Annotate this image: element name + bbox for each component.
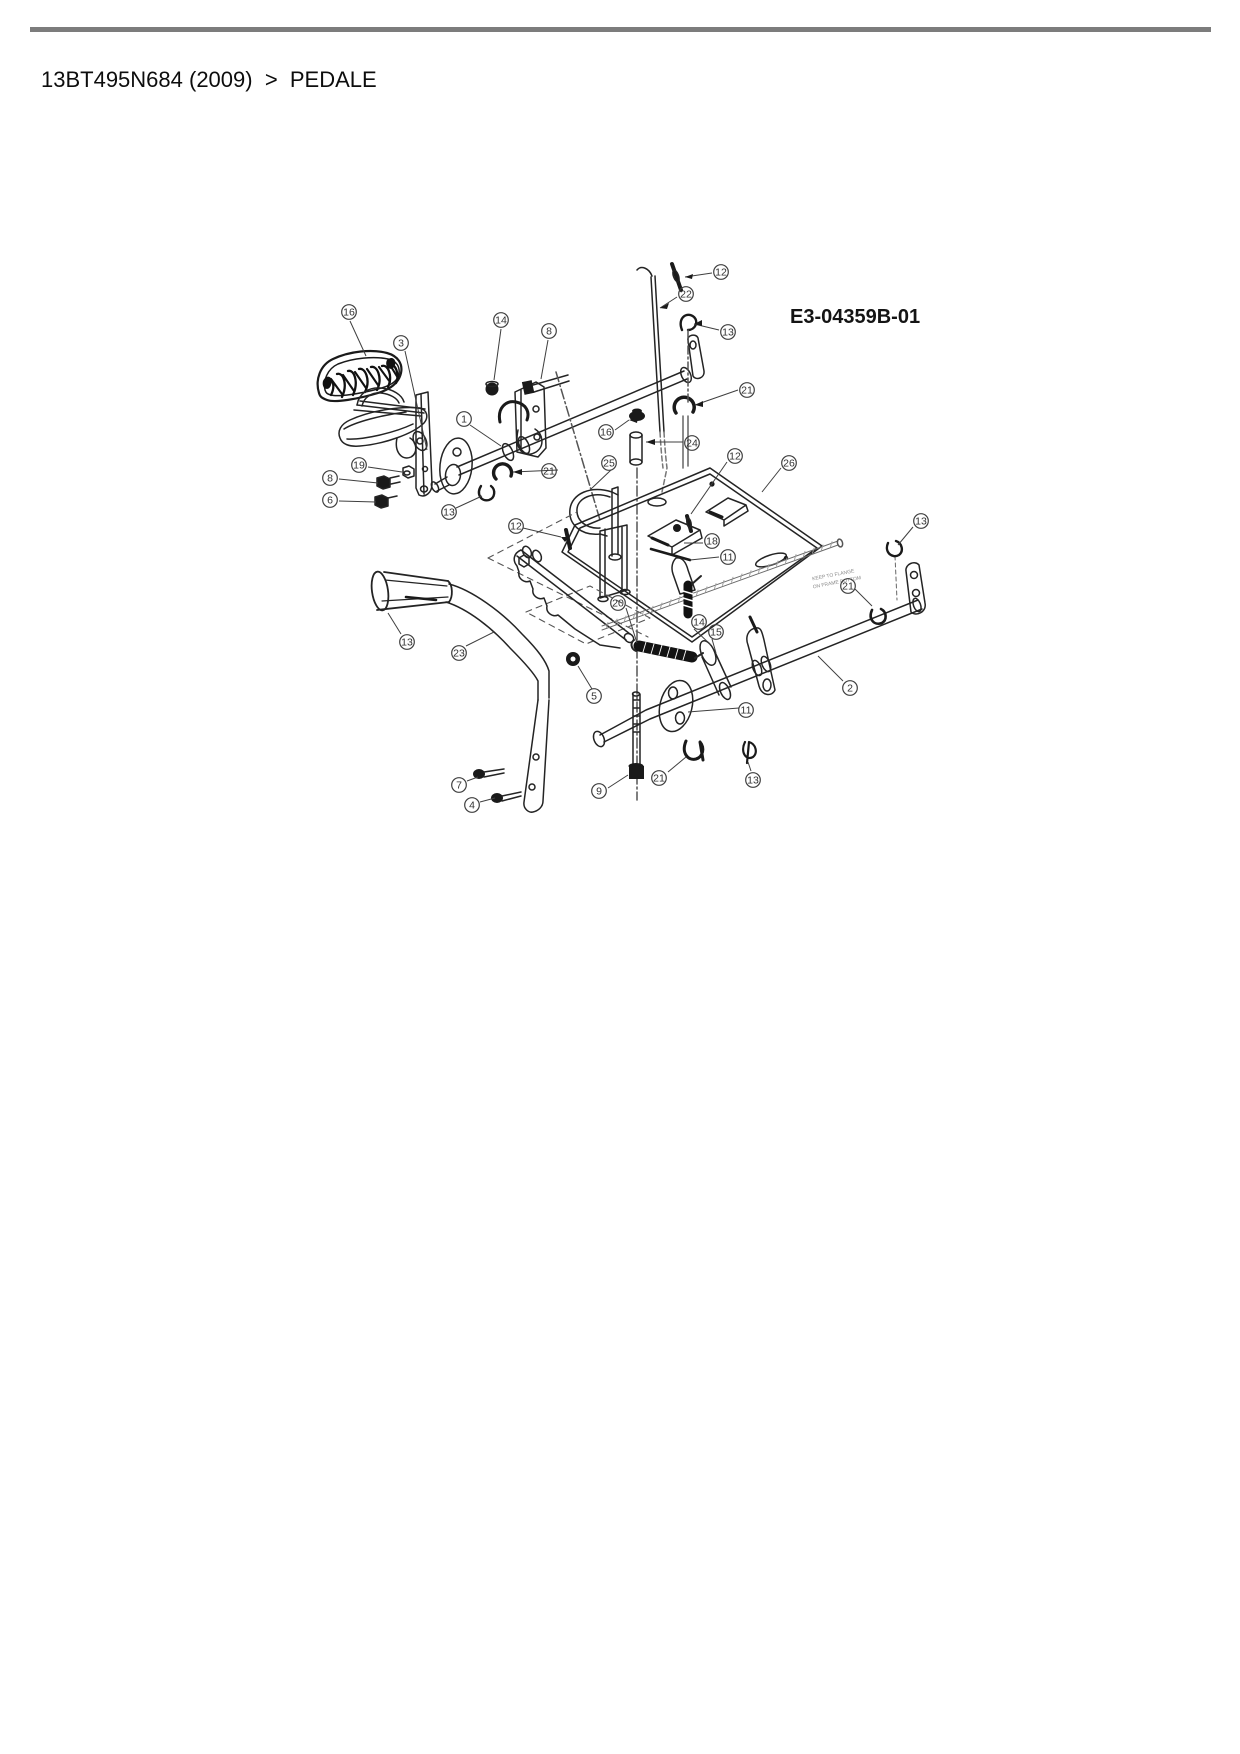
svg-text:12: 12 bbox=[729, 451, 741, 463]
svg-text:8: 8 bbox=[327, 473, 333, 485]
svg-text:1: 1 bbox=[461, 414, 467, 426]
svg-text:5: 5 bbox=[591, 691, 597, 703]
svg-text:16: 16 bbox=[600, 427, 612, 439]
svg-text:22: 22 bbox=[680, 289, 692, 301]
svg-text:24: 24 bbox=[686, 438, 698, 450]
svg-text:26: 26 bbox=[783, 458, 795, 470]
svg-text:21: 21 bbox=[842, 581, 854, 593]
svg-text:2: 2 bbox=[847, 683, 853, 695]
svg-text:20: 20 bbox=[612, 598, 624, 610]
svg-text:11: 11 bbox=[741, 705, 752, 717]
svg-text:13: 13 bbox=[915, 516, 927, 528]
svg-text:13: 13 bbox=[747, 775, 759, 787]
svg-text:14: 14 bbox=[495, 315, 507, 327]
svg-text:13: 13 bbox=[401, 637, 413, 649]
svg-text:23: 23 bbox=[453, 648, 465, 660]
svg-text:4: 4 bbox=[469, 800, 475, 812]
svg-text:16: 16 bbox=[343, 307, 355, 319]
svg-text:15: 15 bbox=[710, 627, 722, 639]
svg-text:8: 8 bbox=[546, 326, 552, 338]
svg-text:14: 14 bbox=[693, 617, 705, 629]
svg-text:25: 25 bbox=[603, 458, 615, 470]
svg-text:12: 12 bbox=[510, 521, 522, 533]
svg-text:13: 13 bbox=[443, 507, 455, 519]
svg-text:7: 7 bbox=[456, 780, 462, 792]
svg-text:19: 19 bbox=[353, 460, 365, 472]
svg-text:21: 21 bbox=[543, 466, 555, 478]
svg-text:11: 11 bbox=[723, 552, 734, 564]
svg-text:3: 3 bbox=[398, 338, 404, 350]
svg-text:13: 13 bbox=[722, 327, 734, 339]
svg-text:12: 12 bbox=[715, 267, 727, 279]
svg-text:21: 21 bbox=[741, 385, 753, 397]
svg-text:21: 21 bbox=[653, 773, 665, 785]
svg-text:E3-04359B-01: E3-04359B-01 bbox=[790, 306, 920, 328]
svg-text:9: 9 bbox=[596, 786, 602, 798]
svg-text:18: 18 bbox=[706, 536, 718, 548]
svg-text:6: 6 bbox=[327, 495, 333, 507]
